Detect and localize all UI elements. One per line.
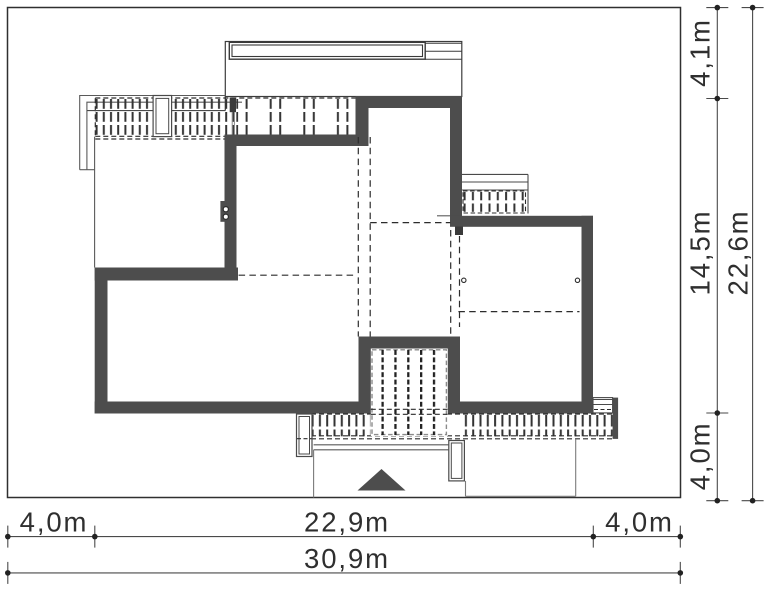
svg-text:4,0m: 4,0m	[20, 507, 89, 538]
svg-text:22,9m: 22,9m	[304, 507, 390, 538]
svg-text:4,0m: 4,0m	[685, 422, 716, 491]
svg-text:30,9m: 30,9m	[304, 543, 390, 574]
svg-text:22,6m: 22,6m	[723, 210, 754, 296]
svg-text:14,5m: 14,5m	[685, 210, 716, 296]
svg-text:4,0m: 4,0m	[605, 507, 674, 538]
svg-text:4,1m: 4,1m	[685, 18, 716, 87]
